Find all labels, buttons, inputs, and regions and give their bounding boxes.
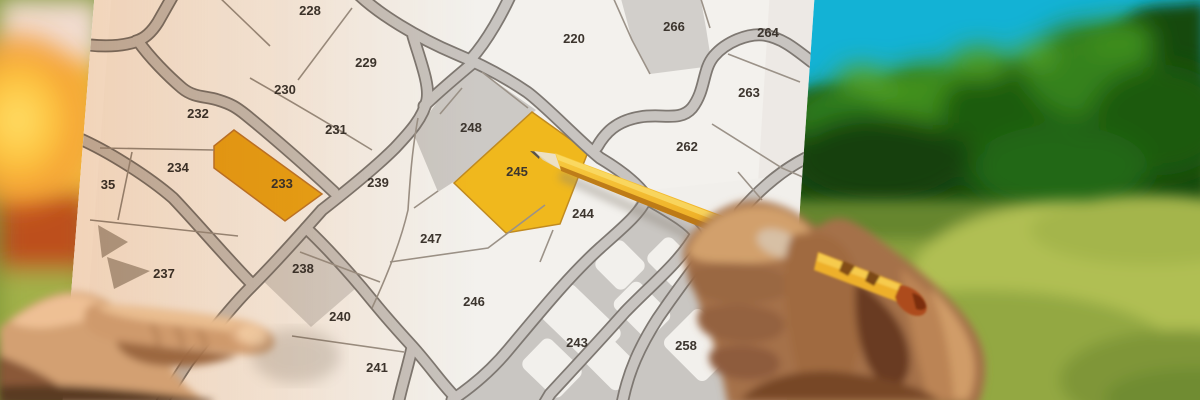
svg-text:266: 266 (663, 19, 685, 34)
svg-text:263: 263 (738, 85, 760, 100)
svg-text:258: 258 (675, 338, 697, 353)
svg-text:264: 264 (757, 25, 779, 40)
svg-text:262: 262 (676, 139, 698, 154)
svg-text:244: 244 (572, 206, 594, 221)
svg-text:245: 245 (506, 164, 528, 179)
svg-text:243: 243 (566, 335, 588, 350)
svg-text:220: 220 (563, 31, 585, 46)
